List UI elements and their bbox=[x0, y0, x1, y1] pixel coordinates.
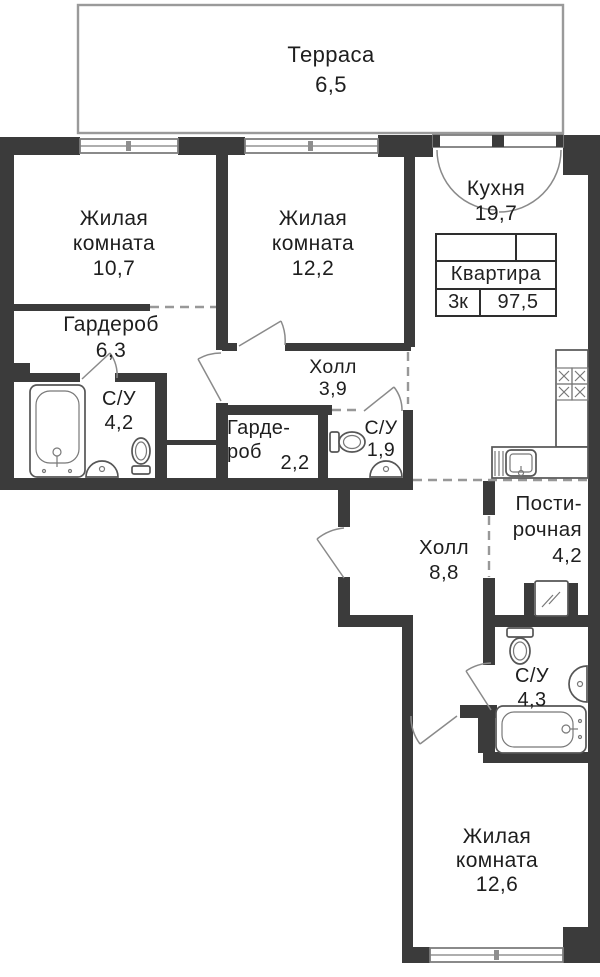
room-label-kitchen: Кухня 19,7 bbox=[467, 176, 525, 226]
room-label-bath-2: С/У 1,9 bbox=[364, 417, 397, 461]
toilet-icon bbox=[132, 438, 150, 474]
sink-icon bbox=[86, 461, 118, 477]
room-label-living-1: Жилая комната 10,7 bbox=[73, 206, 155, 281]
bathtub-icon bbox=[496, 706, 586, 753]
toilet-icon bbox=[330, 432, 365, 452]
room-area-wardrobe-2: 2,2 bbox=[280, 452, 309, 475]
room-label-wardrobe-1: Гардероб 6,3 bbox=[63, 312, 159, 364]
bathtub-icon bbox=[30, 385, 85, 477]
door-swing-arc bbox=[82, 321, 491, 744]
room-label-laundry: Пости- рочная 4,2 bbox=[513, 491, 582, 569]
stamp-title: Квартира bbox=[437, 262, 555, 289]
stove-icon bbox=[556, 368, 588, 400]
floor-plan: Терраса 6,5 Жилая комната 10,7 Жилая ком… bbox=[0, 0, 600, 977]
room-label-hall-1: Холл 3,9 bbox=[309, 356, 357, 400]
terrace-label: Терраса 6,5 bbox=[287, 40, 374, 100]
apartment-stamp: Квартира 3к 97,5 bbox=[435, 233, 557, 317]
stamp-empty-cell bbox=[437, 235, 515, 260]
stamp-bottom-row: 3к 97,5 bbox=[437, 290, 555, 315]
room-label-bath-3: С/У 4,3 bbox=[515, 664, 549, 712]
sink-icon bbox=[370, 461, 402, 477]
room-label-living-3: Жилая комната 12,6 bbox=[456, 825, 538, 897]
sink-icon bbox=[569, 666, 587, 702]
room-label-bath-1: С/У 4,2 bbox=[102, 387, 136, 435]
stamp-rooms-count: 3к bbox=[437, 290, 481, 315]
washing-machine-icon bbox=[535, 581, 568, 616]
toilet-icon bbox=[507, 628, 533, 664]
stamp-top-row bbox=[437, 235, 555, 262]
stamp-total-area: 97,5 bbox=[481, 290, 555, 315]
room-label-living-2: Жилая комната 12,2 bbox=[272, 206, 354, 281]
stamp-empty-cell bbox=[515, 235, 555, 260]
room-label-hall-2: Холл 8,8 bbox=[419, 535, 469, 585]
